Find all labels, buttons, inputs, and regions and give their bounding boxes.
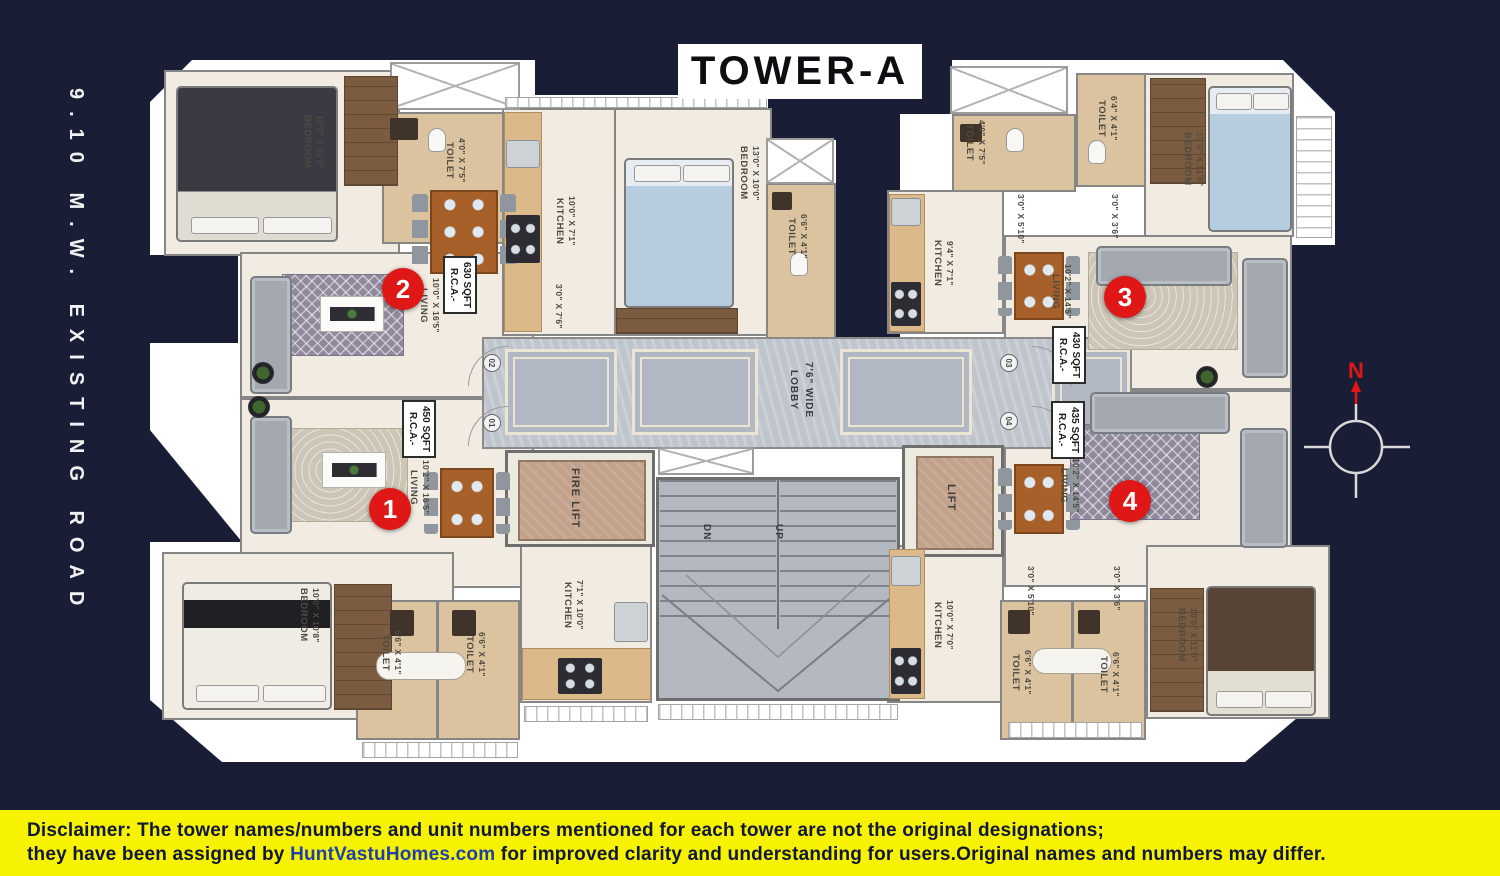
disclaimer-line-1: Disclaimer: The tower names/numbers and … (27, 819, 1500, 843)
floor-plan-canvas: BEDROOM10'0" X 12'0" TOILET4'0" X 7'5" L… (0, 0, 1500, 876)
plan-gap (150, 255, 238, 343)
stove (891, 648, 921, 694)
bed (1208, 86, 1292, 232)
stove (891, 282, 921, 326)
door-number-02: 02 (483, 354, 501, 372)
room-label-bedroom-tm: BEDROOM13'0" X 10'0" (736, 146, 762, 201)
kitchen-sink (891, 556, 921, 586)
railing (362, 742, 518, 758)
fire-lift-car (518, 460, 646, 541)
passage-dim-u3b: 3'0" X 3'6" (1110, 194, 1120, 239)
vanity (1078, 610, 1100, 634)
disclaimer-bar: Disclaimer: The tower names/numbers and … (0, 810, 1500, 876)
room-label-toilet-tl: TOILET4'0" X 7'5" (442, 138, 468, 183)
dining-chairs (412, 194, 428, 272)
unit-marker-2: 2 (382, 268, 424, 310)
unit-marker-4: 4 (1109, 480, 1151, 522)
disclaimer-text-1: The tower names/numbers and unit numbers… (132, 820, 1104, 841)
dining-table-unit1 (440, 468, 494, 538)
railing (524, 706, 648, 722)
dining-chairs (998, 256, 1012, 316)
lobby-label: LOBBY7'6" WIDE (786, 362, 816, 418)
sofa (1090, 392, 1230, 434)
room-label-living-u4: LIVING10'2" X 14'5" (1056, 458, 1082, 513)
toilet-seat (1088, 140, 1106, 164)
door-number-03: 03 (1000, 354, 1018, 372)
room-label-kitchen-u3: KITCHEN9'4" X 7'1" (930, 240, 956, 286)
stairs-dn-label: DN (700, 524, 712, 540)
railing (1008, 722, 1142, 738)
plant (248, 396, 270, 418)
pillow (263, 217, 331, 234)
lobby-tile (505, 349, 617, 435)
railing (1296, 116, 1332, 238)
tower-title-box: TOWER-A (678, 44, 922, 99)
bed (1206, 586, 1316, 716)
compass-north-letter: N (1348, 358, 1364, 383)
pillow (196, 685, 259, 702)
room-label-toilet-bl1: TOILET6'6" X 4'1" (378, 630, 404, 675)
room-label-toilet-bl2: TOILET6'6" X 4'1" (462, 632, 488, 677)
vanity (772, 192, 792, 210)
stove (558, 658, 602, 694)
room-label-kitchen-u2: KITCHEN10'0" X 7'1" (552, 196, 578, 246)
existing-road-label: 9.10 M.W. EXISTING ROAD (64, 88, 87, 617)
huntvastuhomes-link[interactable]: HuntVastuHomes.com (290, 844, 495, 865)
compass-icon: N (1298, 352, 1414, 502)
pillow (263, 685, 326, 702)
room-label-bedroom-tr: BEDROOM10'0" X 11'0" (1180, 132, 1206, 186)
disclaimer-prefix: Disclaimer: (27, 820, 132, 841)
unit-marker-3: 3 (1104, 276, 1146, 318)
fire-lift-label: FIRE LIFT (568, 468, 581, 528)
toilet-seat (1006, 128, 1024, 152)
balcony-top-left (390, 62, 520, 110)
kitchen-sink (891, 198, 921, 226)
rca-label-unit3: R.C.A.-430 SQFT (1052, 326, 1086, 384)
duct-shaft (658, 447, 754, 475)
stair-lines (656, 477, 900, 701)
room-label-bedroom-tl: BEDROOM10'0" X 12'0" (300, 115, 326, 170)
room-label-toilet-br1: TOILET6'6" X 4'1" (1008, 650, 1034, 695)
door-number-01: 01 (483, 414, 501, 432)
plant (252, 362, 274, 384)
coffee-table (320, 296, 384, 332)
rca-label-unit4: R.C.A.-435 SQFT (1051, 401, 1085, 459)
disclaimer-text-2: they have been assigned by (27, 844, 290, 865)
room-label-bedroom-bl: BEDROOM10'0" X 10'8" (296, 588, 322, 643)
room-label-kitchen-u1: KITCHEN7'1" X 10'0" (560, 580, 586, 630)
pillow (1216, 93, 1252, 110)
railing (658, 704, 898, 720)
passage-dim-u2: 3'0" X 7'6" (554, 284, 564, 329)
room-label-kitchen-u4: KITCHEN10'0" X 7'0" (930, 600, 956, 650)
vanity (390, 118, 418, 140)
rca-label-unit1: R.C.A.-450 SQFT (402, 400, 436, 458)
pillow (683, 165, 730, 182)
stove (506, 215, 540, 263)
dining-chairs (496, 472, 510, 534)
pillow (1253, 93, 1289, 110)
passage-dim-u3a: 3'0" X 5'10" (1016, 194, 1026, 244)
pillow (634, 165, 681, 182)
pillow (1265, 691, 1312, 708)
pillow (1216, 691, 1263, 708)
plant (1196, 366, 1218, 388)
sofa (1240, 428, 1288, 548)
unit-marker-1: 1 (369, 488, 411, 530)
room-label-toilet-tr2: TOILET6'4" X 4'1" (1094, 96, 1120, 141)
pillow (191, 217, 259, 234)
rca-label-unit2: R.C.A.-630 SQFT (443, 256, 477, 314)
sofa (1242, 258, 1288, 378)
dining-chairs (998, 468, 1012, 530)
lobby-tile (632, 349, 758, 435)
console (616, 308, 738, 334)
room-label-living-u3: LIVING10'2" X 14'5" (1048, 264, 1074, 319)
balcony-top-right (950, 66, 1068, 114)
lobby-tile (840, 349, 972, 435)
coffee-table (322, 452, 386, 488)
room-label-bedroom-br: BEDROOM10'0" X 11'0" (1174, 608, 1200, 662)
passage-dim-u4b: 3'0" X 3'6" (1112, 566, 1122, 611)
sofa (250, 416, 292, 534)
plan-gap (768, 95, 836, 140)
room-label-toilet-tr1: TOILET4'0" X 7'5" (962, 120, 988, 165)
disclaimer-line-2: they have been assigned by HuntVastuHome… (27, 843, 1500, 867)
lift-label: LIFT (944, 484, 957, 511)
kitchen-sink (506, 140, 540, 168)
passage-dim-u4a: 3'0" X 5'10" (1026, 566, 1036, 616)
balcony-top-middle (766, 138, 834, 184)
kitchen-sink (614, 602, 648, 642)
stairs-up-label: UP (772, 524, 784, 540)
door-number-04: 04 (1000, 412, 1018, 430)
room-label-toilet-tm: TOILET6'6" X 4'1" (784, 214, 810, 259)
tower-title: TOWER-A (691, 49, 909, 94)
disclaimer-text-3: for improved clarity and understanding f… (495, 844, 1326, 865)
bed (624, 158, 734, 308)
room-label-toilet-br2: TOILET6'6" X 4'1" (1096, 652, 1122, 697)
